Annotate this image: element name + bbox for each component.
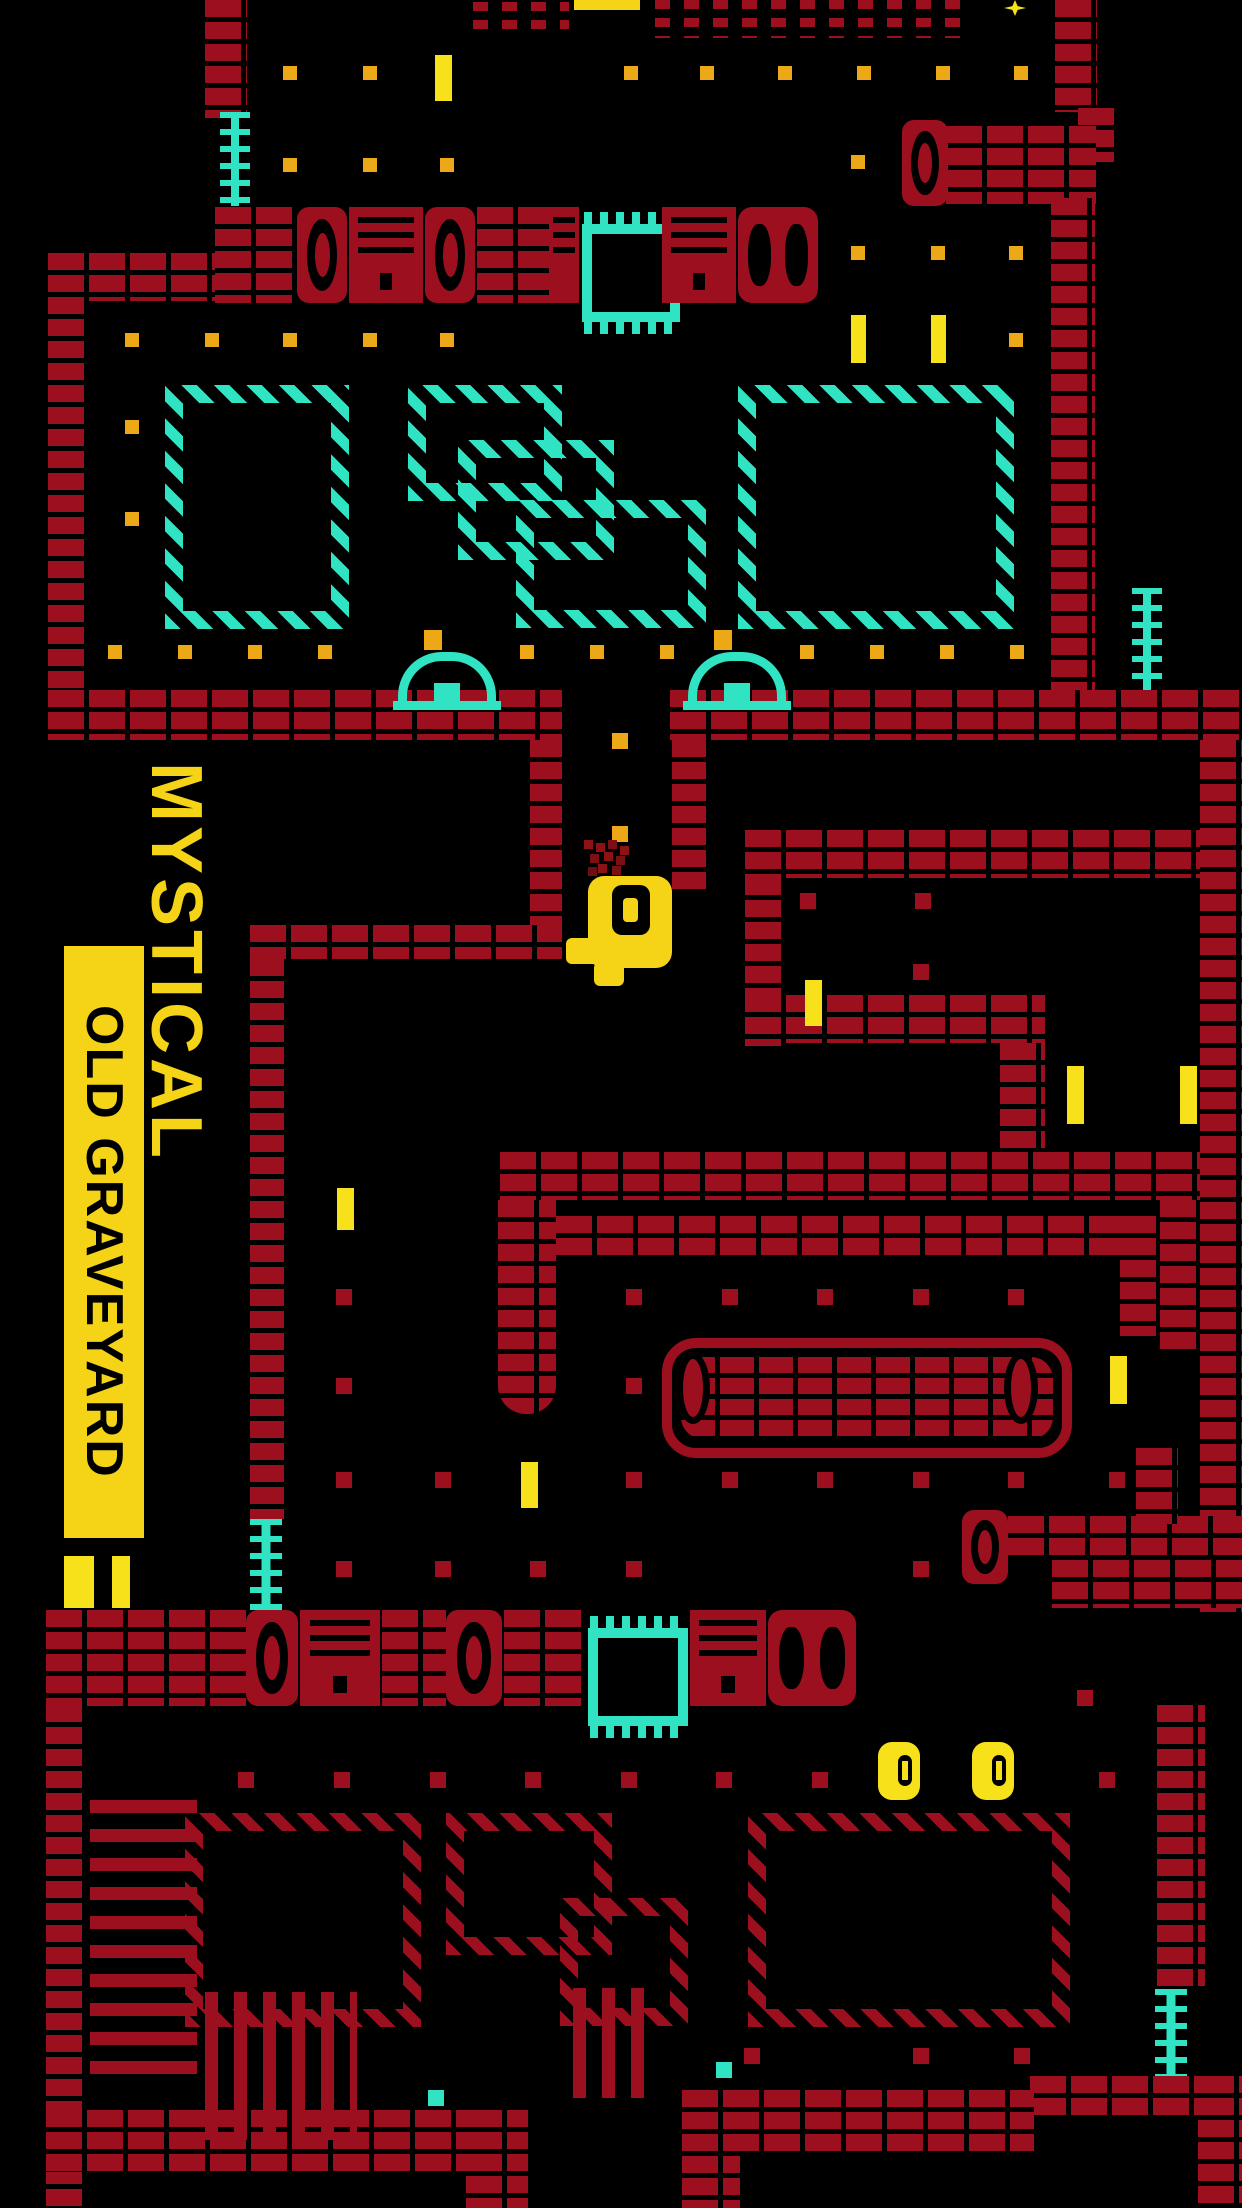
yellow-bar xyxy=(435,55,452,101)
engraved-slab xyxy=(300,1610,380,1706)
floor-dot xyxy=(626,1289,642,1305)
brick-wall xyxy=(1200,740,1242,1612)
floor-dot xyxy=(238,1772,254,1788)
engraved-slab xyxy=(662,207,736,303)
cyan-dot xyxy=(428,2090,444,2106)
floor-dot xyxy=(336,1289,352,1305)
brick-wall xyxy=(946,126,1096,204)
floor-dot xyxy=(1099,1772,1115,1788)
floor-dot xyxy=(722,1472,738,1488)
collectible-dot xyxy=(1009,333,1023,347)
floor-dot xyxy=(744,2048,760,2064)
collectible-dot xyxy=(440,158,454,172)
collectible-dot xyxy=(800,645,814,659)
brick-wall xyxy=(48,253,88,740)
brick-wall xyxy=(556,1216,1126,1256)
tombstone xyxy=(962,1510,1008,1584)
floor-dot xyxy=(915,893,931,909)
floor-dot xyxy=(336,1472,352,1488)
collectible-dot xyxy=(363,158,377,172)
yellow-bar xyxy=(337,1188,354,1230)
floor-dot xyxy=(336,1378,352,1394)
brick-wall xyxy=(1055,0,1097,112)
tombstone xyxy=(446,1610,502,1706)
collectible-dot xyxy=(1009,246,1023,260)
collectible-dot xyxy=(283,66,297,80)
floor-dot xyxy=(1008,1289,1024,1305)
particle-burst xyxy=(584,840,632,878)
tombstone xyxy=(902,120,948,206)
brick-wall xyxy=(504,1610,584,1706)
collectible-dot xyxy=(283,158,297,172)
ruined-wall xyxy=(655,0,973,38)
brick-wall xyxy=(1000,1043,1045,1155)
game-title: MYSTICAL xyxy=(140,762,212,1162)
brick-wall xyxy=(477,207,549,303)
floor-dot xyxy=(800,893,816,909)
comb-gate xyxy=(588,1628,688,1726)
grave-dome xyxy=(398,652,496,701)
yellow-bar xyxy=(851,315,866,363)
double-tombstone xyxy=(738,207,818,303)
floor-dot xyxy=(626,1378,642,1394)
collectible-dot xyxy=(714,630,732,650)
collectible-dot xyxy=(125,420,139,434)
hatched-platform xyxy=(165,385,349,629)
coin xyxy=(878,1742,920,1800)
yellow-bar xyxy=(112,1556,130,1608)
tombstone xyxy=(246,1610,298,1706)
cyan-dot xyxy=(716,2062,732,2078)
yellow-bar xyxy=(1067,1066,1084,1124)
floor-dot xyxy=(430,1772,446,1788)
star-sprite xyxy=(1004,0,1026,16)
floor-dot xyxy=(334,1772,350,1788)
level-banner: OLD GRAVEYARD xyxy=(64,946,144,1538)
hatched-platform xyxy=(516,500,706,628)
brick-wall xyxy=(250,925,562,959)
collectible-dot xyxy=(624,66,638,80)
collectible-dot xyxy=(660,645,674,659)
collectible-dot xyxy=(1014,66,1028,80)
collectible-dot xyxy=(125,512,139,526)
brick-wall xyxy=(1198,2076,1242,2208)
collectible-dot xyxy=(108,645,122,659)
yellow-bar xyxy=(521,1462,538,1508)
tombstone xyxy=(425,207,475,303)
brick-wall xyxy=(500,1152,1200,1200)
brick-wall xyxy=(48,253,218,301)
player-foot xyxy=(566,938,602,964)
brick-wall xyxy=(1157,1705,1205,1989)
floor-dot xyxy=(913,964,929,980)
grave-dome xyxy=(688,652,786,701)
collectible-dot xyxy=(700,66,714,80)
fence xyxy=(90,1800,197,2078)
double-tombstone xyxy=(768,1610,856,1706)
floor-dot xyxy=(435,1561,451,1577)
coin xyxy=(972,1742,1014,1800)
collectible-dot xyxy=(612,733,628,749)
collectible-dot xyxy=(1010,645,1024,659)
brick-wall xyxy=(498,1200,556,1414)
collectible-dot xyxy=(851,155,865,169)
ladder xyxy=(220,112,250,206)
brick-wall xyxy=(1136,1448,1178,1524)
brick-wall xyxy=(46,1610,246,1706)
floor-dot xyxy=(716,1772,732,1788)
floor-dot xyxy=(1014,2048,1030,2064)
brick-wall xyxy=(1051,198,1095,692)
brick-wall xyxy=(672,740,706,894)
brick-wall xyxy=(1160,1200,1200,1352)
hatched-platform xyxy=(738,385,1014,629)
floor-dot xyxy=(913,1472,929,1488)
clipped-banner xyxy=(574,0,640,10)
ruined-wall xyxy=(473,2,569,36)
player-foot xyxy=(594,962,624,986)
brick-wall xyxy=(382,1610,446,1706)
yellow-bar xyxy=(64,1556,94,1608)
floor-dot xyxy=(621,1772,637,1788)
ladder xyxy=(250,1519,282,1611)
collectible-dot xyxy=(520,645,534,659)
engraved-slab xyxy=(349,207,423,303)
collectible-dot xyxy=(125,333,139,347)
brick-wall xyxy=(745,830,1210,878)
collectible-dot xyxy=(857,66,871,80)
collectible-dot xyxy=(936,66,950,80)
floor-dot xyxy=(435,1472,451,1488)
collectible-dot xyxy=(931,246,945,260)
collectible-dot xyxy=(178,645,192,659)
collectible-dot xyxy=(870,645,884,659)
floor-dot xyxy=(913,2048,929,2064)
yellow-bar xyxy=(931,315,946,363)
brick-wall xyxy=(745,995,1045,1043)
hatched-platform-red xyxy=(748,1813,1070,2027)
collectible-dot xyxy=(440,333,454,347)
fence xyxy=(573,1988,651,2098)
ladder xyxy=(1155,1989,1187,2077)
brick-wall xyxy=(205,0,247,118)
brick-wall xyxy=(466,2110,528,2208)
collectible-dot xyxy=(590,645,604,659)
floor-dot xyxy=(913,1561,929,1577)
brick-wall xyxy=(215,207,297,303)
floor-dot xyxy=(530,1561,546,1577)
yellow-bar xyxy=(805,980,822,1026)
yellow-bar xyxy=(1180,1066,1197,1124)
tombstone xyxy=(297,207,347,303)
brick-wall xyxy=(1052,1560,1242,1608)
collectible-dot xyxy=(778,66,792,80)
collectible-dot xyxy=(318,645,332,659)
game-screen[interactable]: MYSTICAL OLD GRAVEYARD xyxy=(0,0,1242,2208)
fence xyxy=(205,1992,357,2140)
floor-dot xyxy=(626,1472,642,1488)
collectible-dot xyxy=(363,333,377,347)
floor-dot xyxy=(1077,1690,1093,1706)
sarcophagus-end xyxy=(1004,1352,1038,1424)
collectible-dot xyxy=(940,645,954,659)
collectible-dot xyxy=(283,333,297,347)
floor-dot xyxy=(525,1772,541,1788)
floor-dot xyxy=(817,1289,833,1305)
floor-dot xyxy=(812,1772,828,1788)
floor-dot xyxy=(626,1561,642,1577)
collectible-dot xyxy=(424,630,442,650)
collectible-dot xyxy=(205,333,219,347)
brick-wall xyxy=(1120,1216,1160,1336)
ladder xyxy=(1132,588,1162,690)
collectible-dot xyxy=(363,66,377,80)
floor-dot xyxy=(1109,1472,1125,1488)
brick-wall xyxy=(250,959,284,1519)
level-name: OLD GRAVEYARD xyxy=(78,1005,130,1479)
floor-dot xyxy=(722,1289,738,1305)
collectible-dot xyxy=(248,645,262,659)
brick-wall xyxy=(1008,1516,1242,1560)
floor-dot xyxy=(336,1561,352,1577)
yellow-bar xyxy=(1110,1356,1127,1404)
engraved-slab xyxy=(549,207,579,303)
floor-dot xyxy=(913,1289,929,1305)
collectible-dot xyxy=(851,246,865,260)
sarcophagus-end xyxy=(676,1352,710,1424)
engraved-slab xyxy=(690,1610,766,1706)
brick-wall xyxy=(682,2090,740,2208)
floor-dot xyxy=(1008,1472,1024,1488)
floor-dot xyxy=(817,1472,833,1488)
